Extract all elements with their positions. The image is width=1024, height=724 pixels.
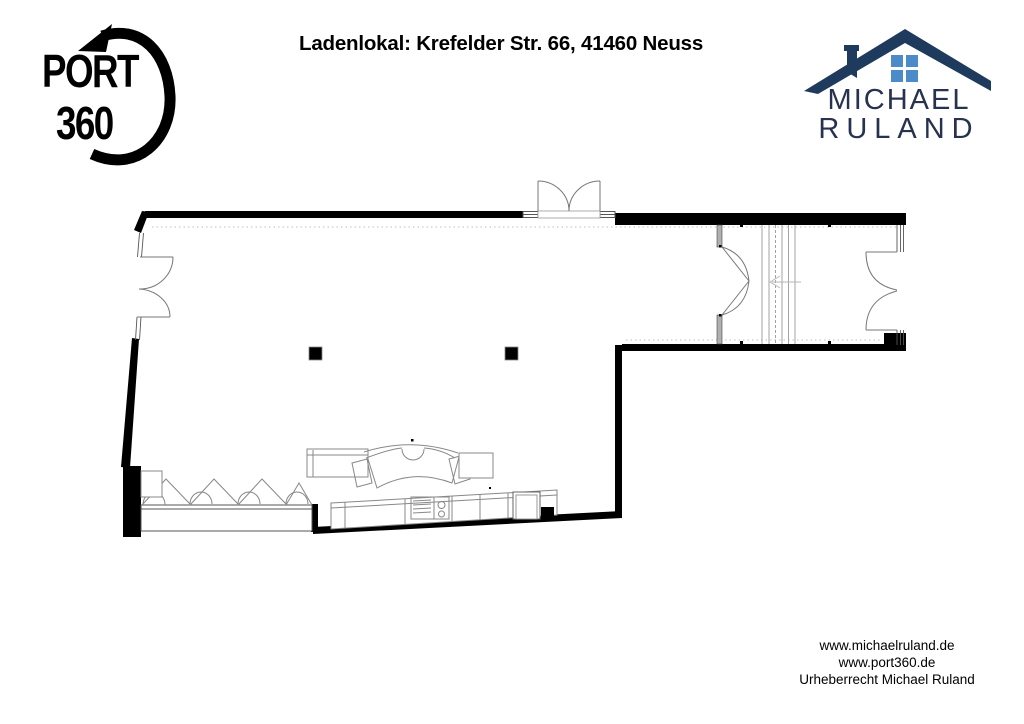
column-left <box>309 347 322 360</box>
staircase <box>762 225 801 344</box>
columns <box>309 347 518 360</box>
counter-notch <box>402 449 424 460</box>
wall-right-main-room <box>615 345 622 515</box>
folding-display-panels <box>142 479 312 505</box>
window-top-left <box>523 212 538 218</box>
stair-direction-arrow-icon <box>770 276 801 288</box>
doors <box>137 181 897 330</box>
window-top-right <box>600 212 615 218</box>
wall-left-lower <box>121 338 139 468</box>
double-door-corridor-partition <box>722 247 749 315</box>
pillar-block-small <box>541 507 554 520</box>
column-right <box>505 347 518 360</box>
footer-credits: www.michaelruland.de www.port360.de Urhe… <box>768 637 1006 688</box>
window-icon <box>891 55 918 82</box>
side-counter-right <box>459 453 493 478</box>
double-door-left-wall <box>137 257 173 317</box>
entrance-double-door-corridor-right <box>866 252 897 330</box>
chimney-cap <box>844 45 859 51</box>
footer-copyright: Urheberrecht Michael Ruland <box>768 671 1006 688</box>
port360-text-port: PORT <box>42 48 138 94</box>
window-corridor-right-upper <box>897 225 904 252</box>
wall-bottom-corridor <box>622 344 906 351</box>
side-counter-left <box>307 449 368 477</box>
wall-block-corridor-corner <box>884 333 906 346</box>
wall-top-main <box>145 211 523 218</box>
ruland-text-michael: MICHAEL <box>804 86 994 115</box>
ruland-text-ruland: RULAND <box>804 115 994 144</box>
box-unit <box>513 492 540 519</box>
wall-block-bottom-left <box>123 466 141 537</box>
furniture <box>141 445 557 531</box>
footer-link-michaelruland: www.michaelruland.de <box>768 637 1006 654</box>
partition-wall-corridor <box>717 225 722 344</box>
page-title: Ladenlokal: Krefelder Str. 66, 41460 Neu… <box>299 32 703 56</box>
window-left-upper <box>138 233 144 257</box>
display-side-box <box>141 471 162 497</box>
window-left-lower <box>136 317 142 340</box>
port360-logo: PORT 360 <box>30 14 195 172</box>
entrance-double-door-top <box>538 181 600 218</box>
curved-counter <box>352 445 470 488</box>
wall-top-corridor <box>615 213 906 225</box>
footer-link-port360: www.port360.de <box>768 654 1006 671</box>
port360-text-360: 360 <box>56 100 113 146</box>
wall-top-left-corner <box>134 211 149 233</box>
reference-dotted-lines <box>152 227 898 340</box>
michael-ruland-logo: MICHAEL RULAND <box>798 20 998 152</box>
